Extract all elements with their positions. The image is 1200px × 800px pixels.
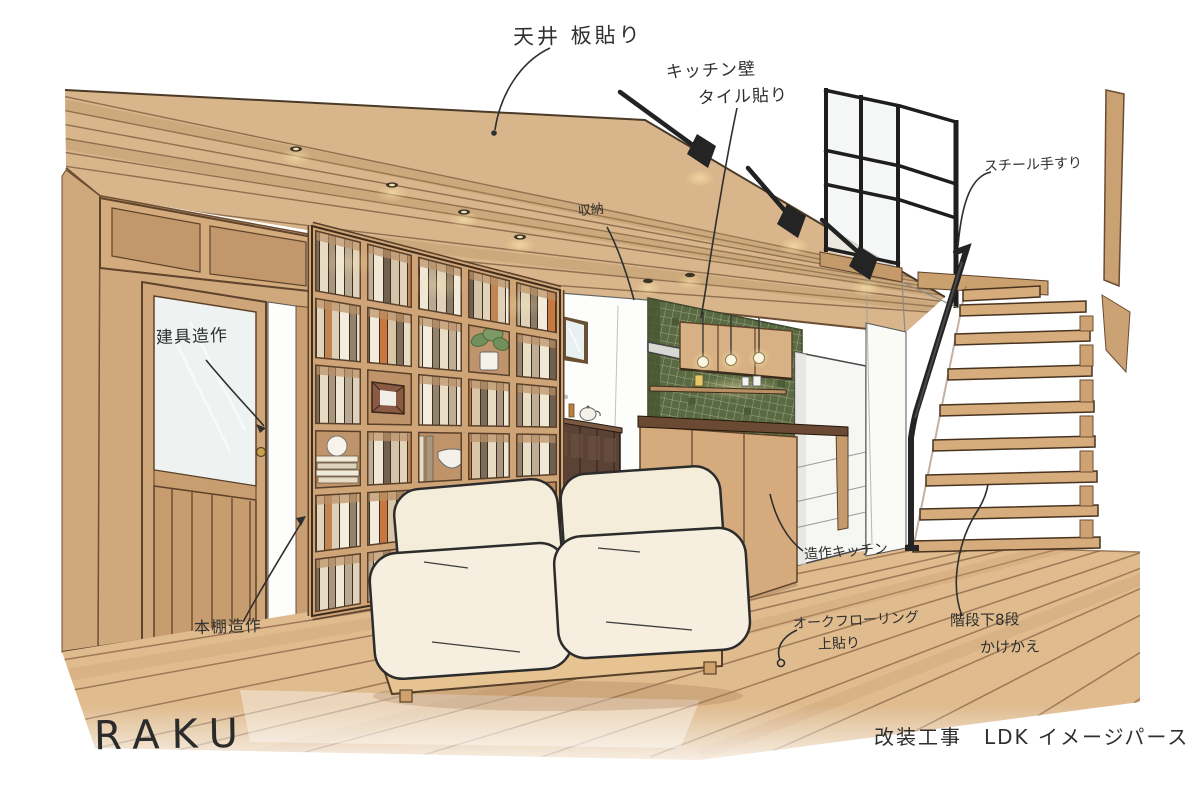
artist-signature: RAKU bbox=[94, 711, 251, 760]
annotation-stairs-2: かけかえ bbox=[980, 638, 1040, 656]
door-opening-gap bbox=[268, 302, 296, 646]
small-window bbox=[562, 316, 588, 364]
wall-column bbox=[866, 323, 906, 556]
annotation-storage: 収納 bbox=[577, 203, 604, 221]
sofa-seat-cushion-right bbox=[553, 526, 752, 659]
door-glass-pane bbox=[154, 296, 256, 486]
annotation-door: 建具造作 bbox=[156, 327, 229, 349]
stair-side-posts bbox=[1080, 316, 1093, 538]
annotation-flooring-2: 上貼り bbox=[818, 635, 861, 653]
annotation-ceiling: 天井 板貼り bbox=[513, 23, 643, 49]
right-wall-panel bbox=[1102, 90, 1130, 372]
annotation-kitchen-wall-1: キッチン壁 bbox=[666, 60, 757, 83]
drawing-caption: 改装工事 LDK イメージパース bbox=[874, 726, 1189, 749]
sofa-seat-cushion-left bbox=[368, 541, 574, 681]
annotation-kitchen-wall-2: タイル貼り bbox=[698, 86, 789, 109]
door-knob bbox=[257, 448, 266, 457]
interior-sketch bbox=[0, 0, 1200, 800]
sketch-canvas: 天井 板貼り キッチン壁 タイル貼り 収納 スチール手すり 建具造作 本棚造作 … bbox=[0, 0, 1200, 800]
annotation-stairs-1: 階段下8段 bbox=[950, 611, 1020, 629]
left-wall bbox=[62, 170, 318, 656]
refrigerator bbox=[795, 352, 866, 566]
annotation-bookshelf: 本棚造作 bbox=[194, 617, 263, 638]
annotation-steel-handrail: スチール手すり bbox=[984, 155, 1083, 175]
